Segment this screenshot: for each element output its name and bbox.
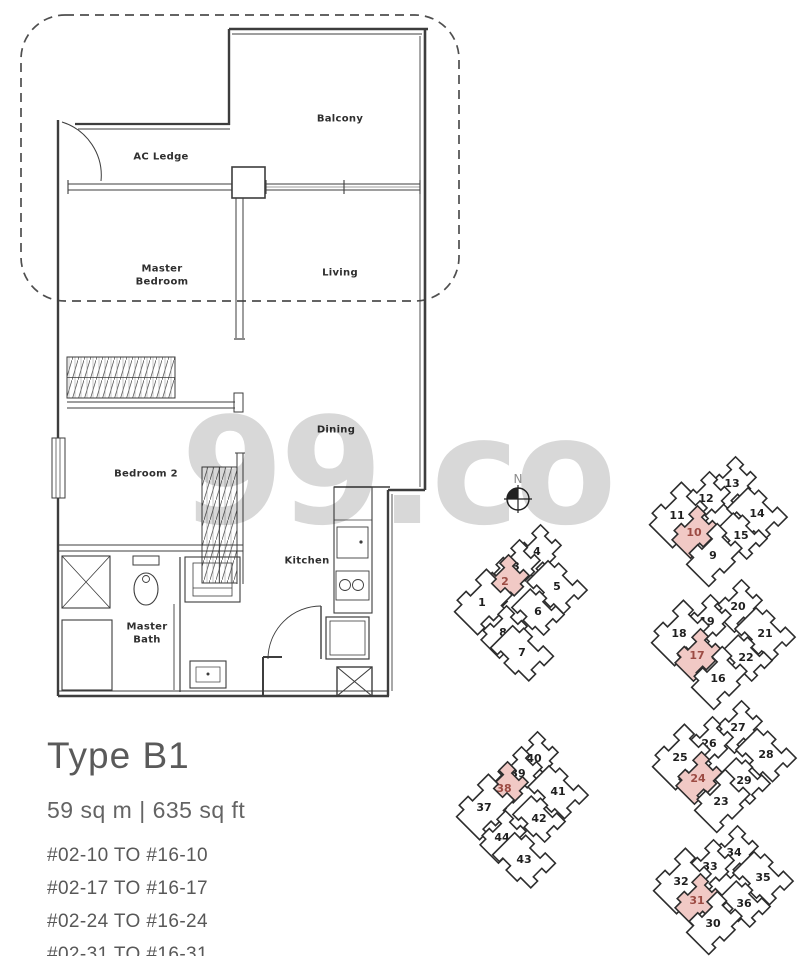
stack-range: #02-24 TO #16-24 bbox=[47, 911, 245, 944]
stack-range: #02-31 TO #16-31 bbox=[47, 944, 245, 956]
unit-number: 36 bbox=[736, 897, 752, 910]
unit-number: 15 bbox=[733, 529, 748, 542]
room-label-master-bath: Master Bath bbox=[123, 622, 171, 647]
unit-info-block: Type B1 59 sq m | 635 sq ft #02-10 TO #1… bbox=[47, 735, 245, 956]
unit-number: 6 bbox=[534, 605, 542, 618]
unit-number: 29 bbox=[736, 774, 751, 787]
site-map-clusters: 4352168713121114151092019182122171627262… bbox=[449, 457, 796, 955]
unit-number: 21 bbox=[757, 627, 772, 640]
dashed-boundary bbox=[21, 15, 459, 301]
unit-number: 10 bbox=[686, 526, 702, 539]
unit-number: 30 bbox=[705, 917, 721, 930]
room-label-bedroom2: Bedroom 2 bbox=[114, 469, 178, 480]
site-cluster-stacks-30-36: 34333235363130 bbox=[648, 826, 793, 955]
unit-number: 2 bbox=[501, 575, 509, 588]
unit-number: 17 bbox=[689, 649, 704, 662]
unit-number: 7 bbox=[518, 646, 526, 659]
unit-number: 5 bbox=[553, 580, 561, 593]
stack-range: #02-17 TO #16-17 bbox=[47, 878, 245, 911]
north-label: N bbox=[514, 472, 523, 486]
floor-plan-walls bbox=[52, 29, 428, 696]
unit-number: 42 bbox=[531, 812, 546, 825]
room-label-living: Living bbox=[322, 268, 358, 279]
site-cluster-stacks-23-29: 27262528292423 bbox=[647, 701, 796, 833]
floor-plan-page: N 43521687131211141510920191821221716272… bbox=[0, 0, 800, 956]
unit-number: 16 bbox=[710, 672, 726, 685]
room-label-ac-ledge: AC Ledge bbox=[133, 152, 188, 163]
room-label-kitchen: Kitchen bbox=[284, 556, 329, 567]
unit-number: 14 bbox=[749, 507, 765, 520]
unit-number: 25 bbox=[672, 751, 687, 764]
unit-number: 20 bbox=[730, 600, 746, 613]
unit-number: 11 bbox=[669, 509, 684, 522]
unit-number: 1 bbox=[478, 596, 486, 609]
site-cluster-stacks-9-15: 1312111415109 bbox=[644, 457, 787, 587]
unit-number: 35 bbox=[755, 871, 770, 884]
site-cluster-stacks-37-44: 4039413837424443 bbox=[451, 732, 588, 891]
unit-number: 23 bbox=[713, 795, 728, 808]
compass-quadrant bbox=[507, 488, 518, 499]
unit-number: 22 bbox=[738, 651, 753, 664]
unit-number: 32 bbox=[673, 875, 688, 888]
room-label-master-bedroom: Master Bedroom bbox=[131, 264, 193, 289]
site-cluster-stacks-16-22: 20191821221716 bbox=[646, 580, 795, 710]
unit-number: 31 bbox=[689, 894, 704, 907]
stack-range: #02-10 TO #16-10 bbox=[47, 845, 245, 878]
unit-number: 41 bbox=[550, 785, 565, 798]
unit-area: 59 sq m | 635 sq ft bbox=[47, 797, 245, 824]
unit-number: 9 bbox=[709, 549, 717, 562]
north-compass: N bbox=[504, 472, 532, 513]
unit-number: 43 bbox=[516, 853, 531, 866]
unit-number: 18 bbox=[671, 627, 686, 640]
site-cluster-stacks-1-8: 43521687 bbox=[449, 525, 587, 684]
room-label-balcony: Balcony bbox=[317, 114, 363, 125]
unit-number: 37 bbox=[476, 801, 491, 814]
unit-number: 28 bbox=[758, 748, 773, 761]
unit-type-title: Type B1 bbox=[47, 735, 245, 777]
unit-number: 27 bbox=[730, 721, 745, 734]
unit-number: 24 bbox=[690, 772, 706, 785]
stack-range-list: #02-10 TO #16-10 #02-17 TO #16-17 #02-24… bbox=[47, 845, 245, 956]
room-label-dining: Dining bbox=[317, 425, 355, 436]
